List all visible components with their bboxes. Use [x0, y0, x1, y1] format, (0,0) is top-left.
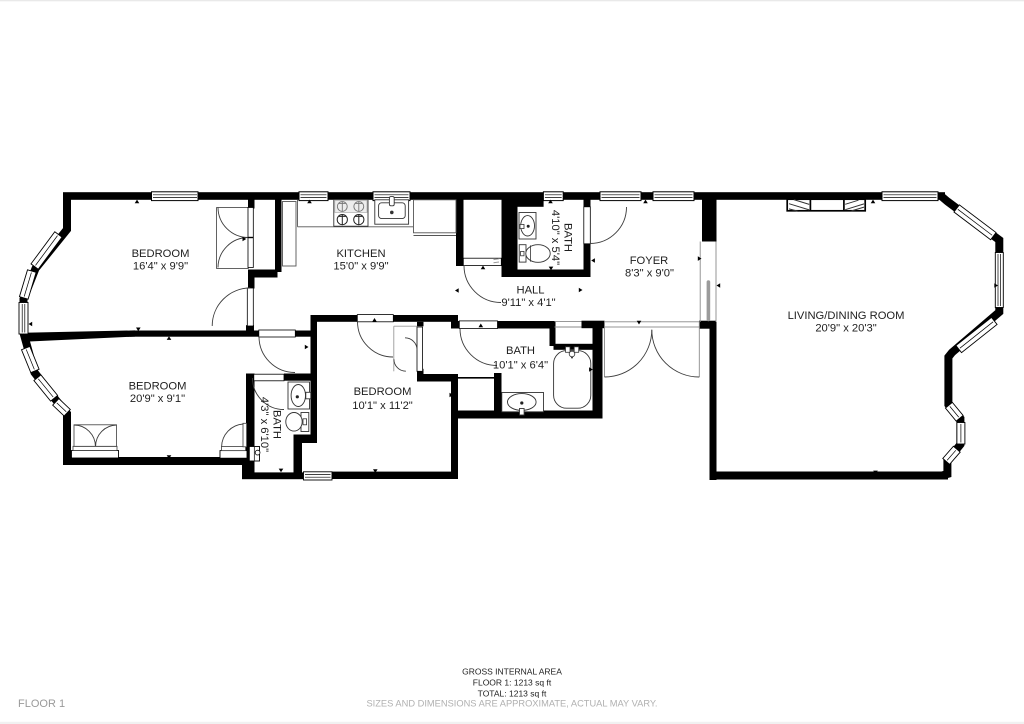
- svg-text:BATH: BATH: [562, 223, 574, 252]
- svg-text:BATH: BATH: [271, 410, 283, 439]
- svg-text:BATH: BATH: [506, 345, 535, 357]
- svg-text:4'3" x 6'10": 4'3" x 6'10": [258, 397, 270, 452]
- svg-text:BEDROOM: BEDROOM: [129, 381, 187, 393]
- svg-text:10'1" x 11'2": 10'1" x 11'2": [352, 400, 413, 412]
- svg-text:8'3" x 9'0": 8'3" x 9'0": [625, 268, 674, 280]
- svg-text:BEDROOM: BEDROOM: [354, 386, 412, 398]
- svg-text:20'9" x 20'3": 20'9" x 20'3": [815, 323, 876, 335]
- svg-text:SIZES AND DIMENSIONS ARE APPRO: SIZES AND DIMENSIONS ARE APPROXIMATE, AC…: [366, 699, 657, 709]
- svg-text:10'1" x 6'4": 10'1" x 6'4": [493, 360, 548, 372]
- svg-text:4'10" x 5'4": 4'10" x 5'4": [549, 210, 561, 265]
- svg-text:BEDROOM: BEDROOM: [132, 248, 190, 260]
- svg-text:FOYER: FOYER: [630, 255, 669, 267]
- svg-text:FLOOR 1: FLOOR 1: [18, 698, 65, 710]
- svg-text:16'4" x 9'9": 16'4" x 9'9": [133, 261, 188, 273]
- svg-text:FLOOR 1: 1213 sq ft: FLOOR 1: 1213 sq ft: [473, 678, 552, 688]
- svg-text:LIVING/DINING ROOM: LIVING/DINING ROOM: [788, 310, 905, 322]
- svg-text:9'11" x 4'1": 9'11" x 4'1": [501, 297, 555, 309]
- svg-text:GROSS INTERNAL AREA: GROSS INTERNAL AREA: [462, 667, 562, 677]
- svg-text:15'0" x 9'9": 15'0" x 9'9": [333, 261, 388, 273]
- svg-text:HALL: HALL: [517, 285, 545, 297]
- svg-text:20'9" x 9'1": 20'9" x 9'1": [130, 393, 185, 405]
- svg-text:TOTAL: 1213 sq ft: TOTAL: 1213 sq ft: [478, 689, 547, 699]
- svg-text:KITCHEN: KITCHEN: [336, 248, 385, 260]
